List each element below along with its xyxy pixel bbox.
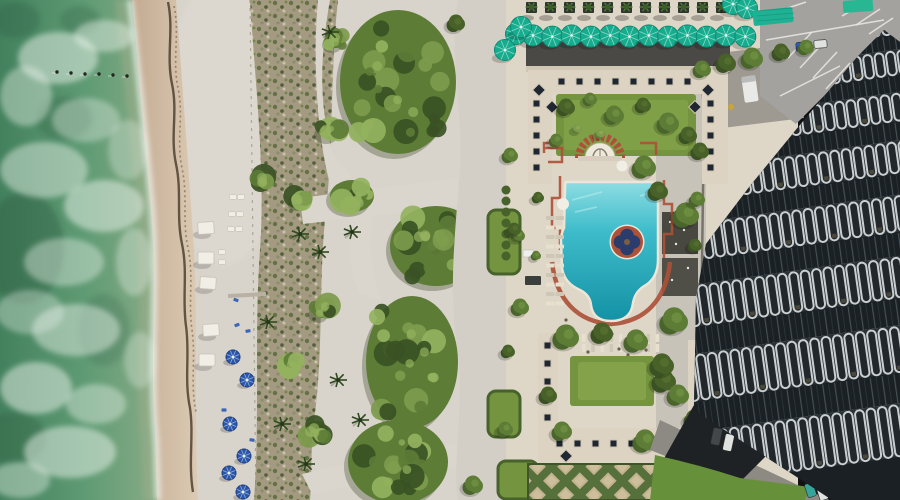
white-lounger — [228, 227, 235, 232]
white-cabana — [203, 323, 220, 336]
skylight — [594, 78, 601, 85]
pool-lounger — [556, 273, 565, 277]
skylight — [666, 78, 673, 85]
pool-lounger — [556, 216, 565, 220]
aerial-resort-photo — [0, 0, 900, 500]
pool-lounger — [546, 283, 555, 287]
green-canopy — [843, 0, 874, 13]
skylight — [612, 78, 619, 85]
pool-lounger — [556, 226, 565, 230]
white-lounger — [237, 212, 244, 217]
piling-post — [69, 71, 72, 74]
white-lounger — [229, 212, 236, 217]
pool-lounger — [582, 334, 586, 342]
pool-lounger — [556, 302, 565, 306]
pool-lounger — [656, 344, 660, 352]
skylight — [533, 148, 540, 155]
pool-lounger — [610, 344, 614, 352]
white-cabana — [200, 276, 217, 289]
pool-lounger — [656, 334, 660, 342]
pool-lounger — [546, 245, 555, 249]
skylight — [574, 440, 581, 447]
hedge-bush — [502, 197, 511, 206]
skylight — [544, 360, 551, 367]
white-cabana — [198, 221, 215, 234]
skylight — [544, 414, 551, 421]
tree-cluster — [314, 117, 349, 144]
skylight — [610, 440, 617, 447]
car — [814, 40, 828, 49]
skylight — [707, 132, 714, 139]
pool-lounger — [556, 245, 565, 249]
piling-post — [55, 70, 58, 73]
white-parasol — [557, 198, 569, 210]
pool-lounger — [556, 283, 565, 287]
pool-lounger — [556, 264, 565, 268]
piling-post — [111, 73, 114, 76]
white-parasol — [617, 161, 628, 172]
boardwalk-path — [228, 294, 266, 296]
skylight — [648, 78, 655, 85]
skylight — [533, 116, 540, 123]
pool-lounger — [556, 235, 565, 239]
skylight — [707, 100, 714, 107]
skylight — [533, 100, 540, 107]
skylight — [558, 78, 565, 85]
pool-lounger — [546, 235, 555, 239]
pool-lounger — [556, 292, 565, 296]
ocean — [0, 0, 158, 500]
white-cabana — [198, 252, 214, 264]
skylight — [684, 78, 691, 85]
white-lounger — [219, 260, 226, 265]
skylight — [707, 116, 714, 123]
skylight — [533, 164, 540, 171]
skylight — [707, 164, 714, 171]
aerial-photo-canvas — [0, 0, 900, 500]
white-lounger — [238, 195, 245, 200]
white-lounger — [236, 227, 243, 232]
hedge-bush — [502, 252, 511, 261]
white-lounger — [219, 250, 226, 255]
pool-lounger — [546, 273, 555, 277]
skylight — [630, 78, 637, 85]
pool-lounger — [546, 292, 555, 296]
skylight — [533, 132, 540, 139]
hedge-bush — [502, 186, 511, 195]
pool-lounger — [582, 344, 586, 352]
piling-post — [83, 72, 86, 75]
piling-post — [125, 74, 128, 77]
person — [617, 347, 620, 350]
pool-lounger — [546, 302, 555, 306]
person — [586, 350, 589, 353]
beach-boardwalk — [228, 294, 266, 296]
pool-lounger — [591, 344, 595, 352]
skylight — [544, 378, 551, 385]
person — [644, 348, 647, 351]
pool-lounger — [546, 254, 555, 258]
skylight — [576, 78, 583, 85]
person — [564, 318, 567, 321]
white-cabana — [199, 354, 215, 366]
white-lounger — [230, 195, 237, 200]
pool-medallion — [610, 225, 645, 260]
blue-lounger — [222, 408, 227, 411]
pool-lounger — [546, 264, 555, 268]
hedge-bush — [502, 208, 511, 217]
pool-lounger — [556, 254, 565, 258]
pool-lounger — [546, 226, 555, 230]
pool-lounger — [546, 216, 555, 220]
skylight — [592, 440, 599, 447]
piling-post — [97, 72, 100, 75]
garden-gate — [525, 276, 541, 285]
